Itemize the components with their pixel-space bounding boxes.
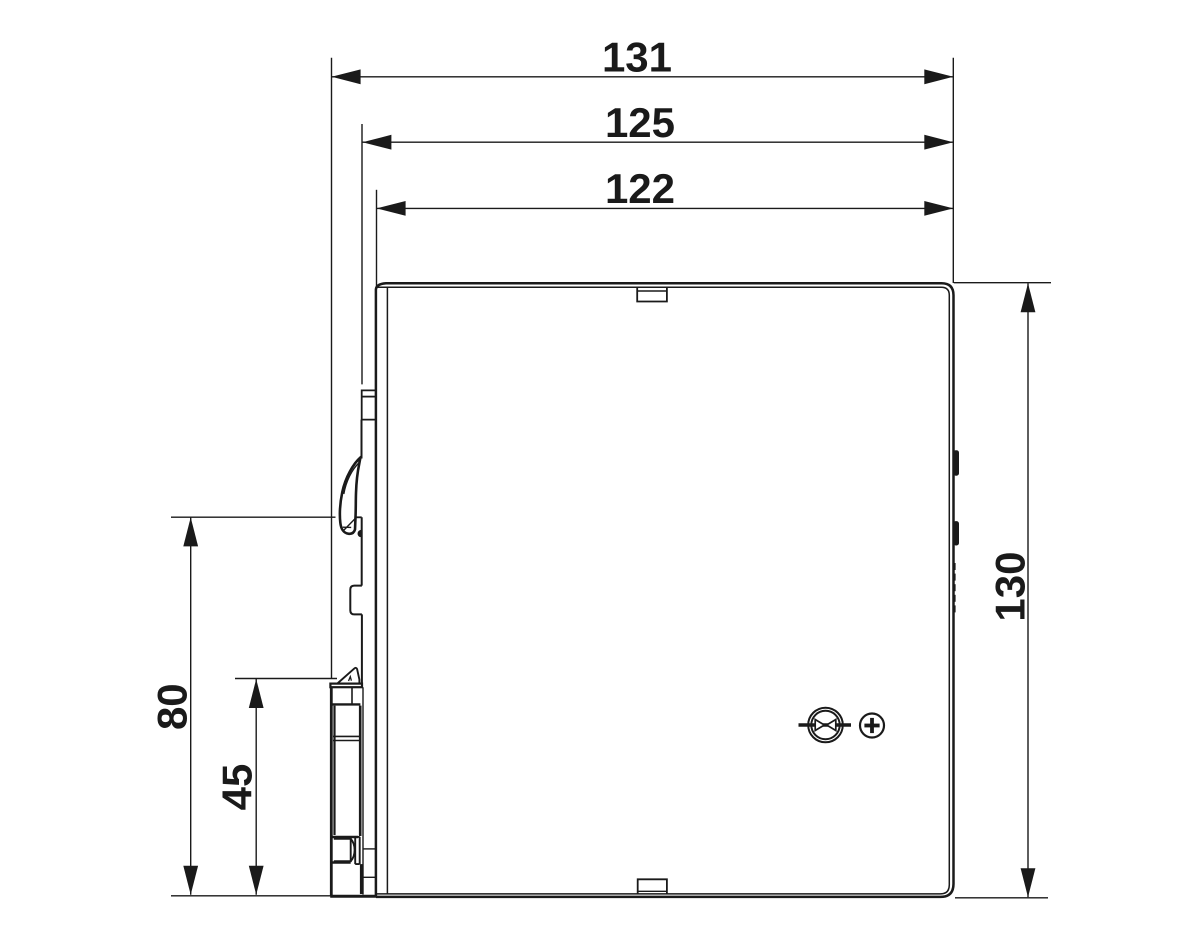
svg-text:131: 131: [602, 34, 672, 81]
svg-text:45: 45: [213, 764, 260, 811]
svg-text:122: 122: [605, 165, 675, 212]
svg-text:125: 125: [605, 99, 675, 146]
svg-text:80: 80: [148, 683, 195, 730]
svg-text:130: 130: [987, 552, 1034, 622]
